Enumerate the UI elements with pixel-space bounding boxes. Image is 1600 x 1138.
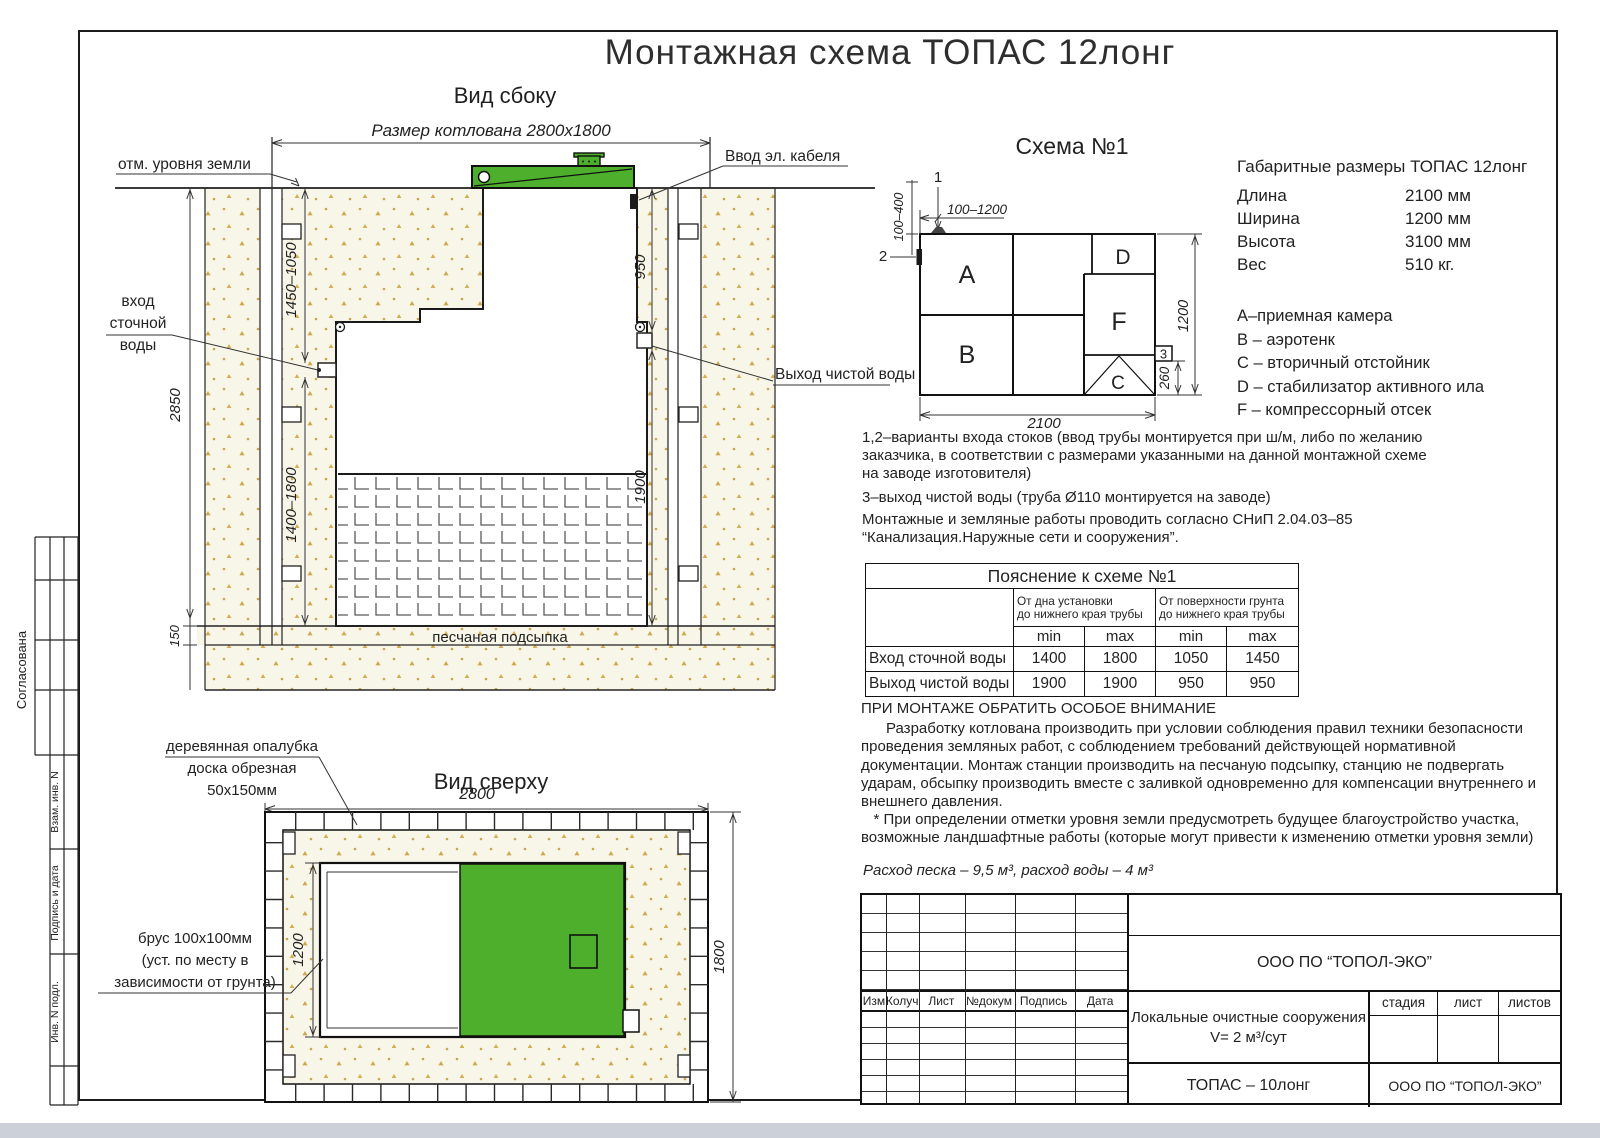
note-line: 3–выход чистой воды (труба Ø110 монтируе… (862, 489, 1572, 507)
spec-label: Ширина (1237, 207, 1405, 230)
marker-1: 1 (934, 169, 942, 186)
note-line: “Канализация.Наружные сети и сооружения”… (862, 529, 1572, 547)
sheets-label: листов (1499, 992, 1560, 1015)
attention-line: проведения земляных работ, с соблюдением… (861, 738, 1576, 756)
attention-line: * При определении отметки уровня земли п… (861, 811, 1576, 829)
cable-entry-label: Ввод эл. кабеля (725, 148, 840, 165)
scan-edge-strip (0, 1123, 1600, 1138)
beam-label-2: (уст. по месту в (142, 952, 249, 969)
formwork-label-3: 50х150мм (207, 782, 277, 799)
attention-line: Разработку котлована производить при усл… (861, 720, 1576, 738)
grid-line (886, 895, 887, 1103)
project-row: Локальные очистные сооружения V= 2 м³/су… (1129, 990, 1560, 1062)
cell-value: 950 (1156, 672, 1227, 697)
spec-value: 3100 мм (1405, 230, 1471, 253)
outlet-stub (637, 333, 652, 348)
grid-line (1075, 895, 1076, 1103)
cell-value: 1900 (1085, 672, 1156, 697)
sheet-label: лист (1438, 992, 1499, 1015)
note-line: 1,2–варианты входа стоков (ввод трубы мо… (862, 429, 1572, 447)
outlet-tab (623, 1010, 639, 1032)
formwork-label-2: доска обрезная (188, 760, 297, 777)
specs-title: Габаритные размеры ТОПАС 12лонг (1237, 157, 1567, 177)
org-cell: ООО ПО “ТОПОЛ-ЭКО” (1129, 895, 1560, 990)
side-view-title: Вид сбоку (395, 83, 615, 109)
spec-row: Вес510 кг. (1237, 253, 1567, 276)
cell-value: 1050 (1156, 647, 1227, 672)
sand-bed-label: песчаная подсыпка (432, 629, 568, 646)
cell-value: 1400 (1014, 647, 1085, 672)
formwork-label-1: деревянная опалубка (166, 738, 319, 755)
chamber-f: F (1111, 308, 1126, 336)
spec-label: Высота (1237, 230, 1405, 253)
grid-line (1015, 895, 1016, 1103)
spec-value: 1200 мм (1405, 207, 1471, 230)
col-data: Дата (1073, 992, 1127, 1010)
max-header: max (1227, 627, 1299, 647)
chamber-d: D (1115, 246, 1130, 269)
width-dim (265, 803, 708, 812)
spec-value: 510 кг. (1405, 253, 1454, 276)
attention-line: документации. Монтаж станции производить… (861, 757, 1576, 775)
cell-value: 1450 (1227, 647, 1299, 672)
inlet-label-2: сточной (110, 315, 167, 332)
max-header: max (1085, 627, 1156, 647)
dim-1800: 1800 (711, 940, 728, 974)
explanation-table: Пояснение к схеме №1 От дна установки до… (865, 563, 1299, 697)
dim-sand-bed: 150 (167, 624, 182, 646)
grid-line (965, 895, 966, 1103)
dim-outlet-upper: 950 (632, 254, 649, 280)
product-name: ТОПАС – 10лонг (1129, 1064, 1370, 1107)
inlet-label-3: воды (120, 337, 157, 354)
attention-line: ударам, обсыпку производить вместе с зал… (861, 775, 1576, 793)
dim-outlet-lower: 1900 (632, 470, 649, 504)
legend-item: В – аэротенк (1237, 329, 1484, 353)
cell-value: 1800 (1085, 647, 1156, 672)
tank-aeration-zone (338, 474, 646, 620)
pit-size-label: Размер котлована 2800х1800 (371, 121, 611, 140)
note-line: заказчика, в соответствии с размерами ук… (862, 447, 1572, 465)
scheme-title: Схема №1 (1015, 133, 1128, 159)
inlet-label-1: вход (121, 293, 154, 310)
inlet-leader-dot (317, 368, 321, 372)
col-list: Лист (919, 992, 965, 1010)
organization-name-2: ООО ПО “ТОПОЛ-ЭКО” (1370, 1064, 1560, 1107)
spec-row: Высота3100 мм (1237, 230, 1567, 253)
inlet-variant2-point (917, 249, 923, 265)
chamber-c: C (1111, 373, 1125, 394)
legend-item: F – компрессорный отсек (1237, 399, 1484, 423)
table-corner-cell (866, 589, 1014, 647)
project-cell: Локальные очистные сооружения V= 2 м³/су… (1129, 992, 1370, 1062)
side-view-drawing: Размер котлована 2800х1800 отм. уровня з… (100, 115, 890, 715)
min-header: min (1014, 627, 1085, 647)
title-block: Изм Колуч Лист №докум Подпись Дата ООО П… (860, 893, 1562, 1105)
stage-value (1370, 1016, 1438, 1062)
row-label: Вход сточной воды (866, 647, 1014, 672)
lug-dot (339, 326, 341, 328)
table-group-1: От дна установки до нижнего края трубы (1014, 589, 1156, 627)
chamber-a: A (959, 261, 976, 289)
project-line-1: Локальные очистные сооружения (1131, 1009, 1366, 1026)
note-line: Монтажные и земляные работы проводить со… (862, 511, 1572, 529)
stamp-right: ООО ПО “ТОПОЛ-ЭКО” Локальные очистные со… (1129, 895, 1560, 1103)
spec-value: 2100 мм (1405, 184, 1471, 207)
dim-1200: 1200 (290, 933, 307, 967)
revision-rows-bottom (862, 1012, 1127, 1103)
grid-line (919, 895, 920, 1103)
consumption-note: Расход песка – 9,5 м³, расход воды – 4 м… (863, 862, 1153, 879)
cell-value: 1900 (1014, 672, 1085, 697)
table-title: Пояснение к схеме №1 (866, 564, 1299, 589)
legend-item: А–приемная камера (1237, 305, 1484, 329)
overall-dimensions-block: Габаритные размеры ТОПАС 12лонг Длина210… (1237, 157, 1567, 276)
page-title: Монтажная схема ТОПАС 12лонг (560, 33, 1220, 73)
lid-handle-icon (479, 172, 490, 183)
lug-dot (639, 326, 641, 328)
ground-level-label: отм. уровня земли (118, 156, 251, 173)
table-row: Вход сточной воды 1400 1800 1050 1450 (866, 647, 1299, 672)
marker-1-leader (935, 187, 941, 229)
spec-row: Ширина1200 мм (1237, 207, 1567, 230)
sheet-value (1438, 1016, 1499, 1062)
dim-inlet-lower: 1400–1800 (283, 467, 300, 543)
stage-label: стадия (1370, 992, 1438, 1015)
inlet-pad (931, 227, 946, 233)
station-lid-green (460, 864, 624, 1036)
revision-rows-top (862, 895, 1127, 990)
marker-2: 2 (879, 248, 887, 265)
beam-label-1: брус 100х100мм (138, 930, 252, 947)
project-line-2: V= 2 м³/сут (1210, 1029, 1287, 1046)
beam-label-3: зависимости от грунта) (114, 974, 276, 991)
min-header: min (1156, 627, 1227, 647)
table-row: Выход чистой воды 1900 1900 950 950 (866, 672, 1299, 697)
outlet-dim-lines-scheme (1173, 361, 1185, 395)
stage-values (1370, 1016, 1560, 1062)
dim-100-1200: 100–1200 (947, 202, 1008, 217)
podpis-data-label: Подпись и дата (49, 865, 61, 941)
col-dokum: №докум (964, 992, 1014, 1010)
cable-entry-point (630, 194, 637, 209)
row-label: Выход чистой воды (866, 672, 1014, 697)
dim-1200-scheme: 1200 (1176, 300, 1192, 332)
chambers-legend: А–приемная камера В – аэротенк С – втори… (1237, 305, 1484, 423)
revision-grid: Изм Колуч Лист №докум Подпись Дата (862, 895, 1129, 1103)
col-podpis: Подпись (1014, 992, 1074, 1010)
pit-size-dimension (272, 140, 710, 147)
note-line: на заводе изготовителя) (862, 465, 1572, 483)
dim-2800: 2800 (458, 786, 495, 803)
cell-value: 950 (1227, 672, 1299, 697)
drawing-page: Монтажная схема ТОПАС 12лонг Вид сбоку (0, 0, 1600, 1138)
inlet-range-v-lines (906, 180, 918, 255)
vzam-inv-label: Взам. инв. N (49, 771, 61, 832)
revision-header: Изм Колуч Лист №докум Подпись Дата (862, 990, 1127, 1012)
dim-100-400: 100–400 (892, 193, 906, 242)
attention-title: ПРИ МОНТАЖЕ ОБРАТИТЬ ОСОБОЕ ВНИМАНИЕ (861, 700, 1576, 718)
installation-notes: 1,2–варианты входа стоков (ввод трубы мо… (862, 429, 1572, 547)
attention-block: ПРИ МОНТАЖЕ ОБРАТИТЬ ОСОБОЕ ВНИМАНИЕ Раз… (861, 700, 1576, 848)
scheme-drawing: Схема №1 A B D F C 3 2100 (860, 130, 1220, 430)
col-koluch: Колуч (886, 992, 919, 1010)
marker-3: 3 (1160, 347, 1167, 362)
legend-item: D – стабилизатор активного ила (1237, 376, 1484, 400)
organization-name: ООО ПО “ТОПОЛ-ЭКО” (1129, 935, 1560, 990)
spec-label: Длина (1237, 184, 1405, 207)
dim-depth: 2850 (167, 388, 184, 423)
top-view-drawing: Вид сверху 2800 (95, 725, 765, 1120)
product-row: ТОПАС – 10лонг ООО ПО “ТОПОЛ-ЭКО” (1129, 1062, 1560, 1107)
stage-grid: стадия лист листов (1370, 992, 1560, 1062)
dim-inlet-upper: 1450–1050 (283, 242, 300, 318)
tank-lid (472, 153, 634, 188)
sheets-value (1499, 1016, 1560, 1062)
attention-line: внешнего давления. (861, 793, 1576, 811)
col-izm: Изм (862, 992, 886, 1010)
inv-podl-label: Инв. N подл. (49, 981, 61, 1043)
margin-stamp: Согласована Взам. инв. N Подпись и дата … (6, 533, 80, 1105)
legend-item: С – вторичный отстойник (1237, 352, 1484, 376)
spec-row: Длина2100 мм (1237, 184, 1567, 207)
spec-label: Вес (1237, 253, 1405, 276)
approved-label: Согласована (14, 630, 29, 709)
dim-260: 260 (1157, 366, 1172, 390)
attention-line: возможные ландшафтные работы (которые мо… (861, 829, 1576, 847)
depth-dim-lines (183, 188, 197, 690)
stage-header: стадия лист листов (1370, 992, 1560, 1016)
table-group-2: От поверхности грунта до нижнего края тр… (1156, 589, 1299, 627)
chamber-b: B (959, 341, 976, 369)
